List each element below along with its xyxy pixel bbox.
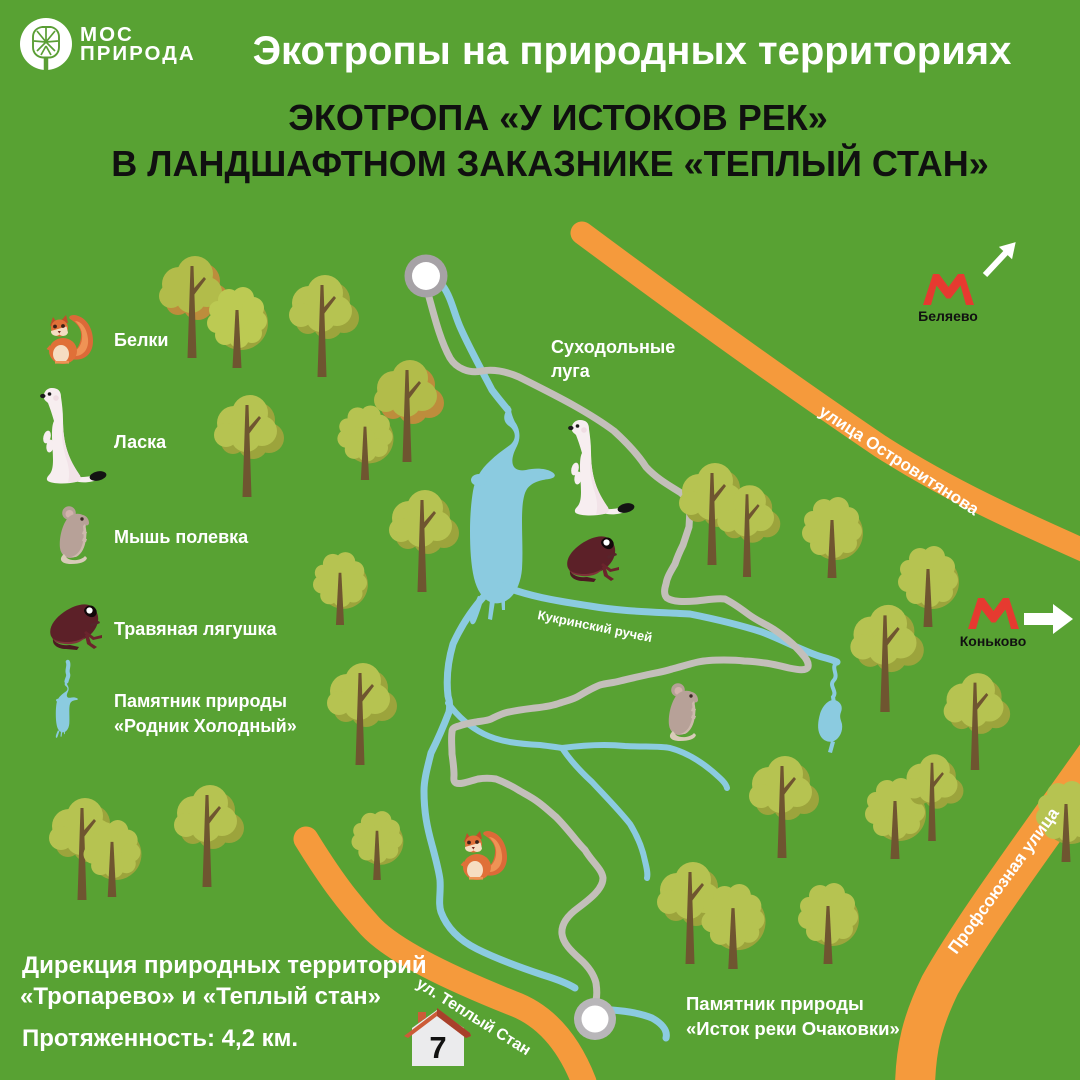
svg-text:ЭКОТРОПА «У ИСТОКОВ РЕК»: ЭКОТРОПА «У ИСТОКОВ РЕК» [288, 97, 827, 138]
svg-text:7: 7 [429, 1030, 446, 1065]
svg-text:В ЛАНДШАФТНОМ ЗАКАЗНИКЕ «ТЕПЛЫ: В ЛАНДШАФТНОМ ЗАКАЗНИКЕ «ТЕПЛЫЙ СТАН» [111, 142, 989, 184]
svg-text:Памятник природы: Памятник природы [686, 993, 864, 1014]
svg-text:Коньково: Коньково [960, 633, 1027, 649]
svg-text:«Родник Холодный»: «Родник Холодный» [114, 716, 297, 736]
svg-text:«Тропарево» и «Теплый стан»: «Тропарево» и «Теплый стан» [20, 983, 381, 1010]
svg-text:Беляево: Беляево [918, 308, 978, 324]
svg-text:Белки: Белки [114, 330, 168, 350]
svg-text:«Исток реки Очаковки»: «Исток реки Очаковки» [686, 1018, 900, 1039]
svg-text:Травяная лягушка: Травяная лягушка [114, 619, 277, 639]
svg-text:луга: луга [551, 361, 591, 381]
svg-text:Мышь полевка: Мышь полевка [114, 527, 249, 547]
svg-text:Экотропы на природных территор: Экотропы на природных территориях [253, 29, 1012, 73]
svg-text:Суходольные: Суходольные [551, 337, 675, 357]
svg-text:Ласка: Ласка [114, 432, 167, 452]
svg-text:Дирекция природных территорий: Дирекция природных территорий [22, 952, 427, 979]
svg-text:Памятник природы: Памятник природы [114, 691, 287, 711]
svg-text:Протяженность: 4,2 км.: Протяженность: 4,2 км. [22, 1025, 298, 1052]
svg-text:ПРИРОДА: ПРИРОДА [80, 42, 196, 65]
